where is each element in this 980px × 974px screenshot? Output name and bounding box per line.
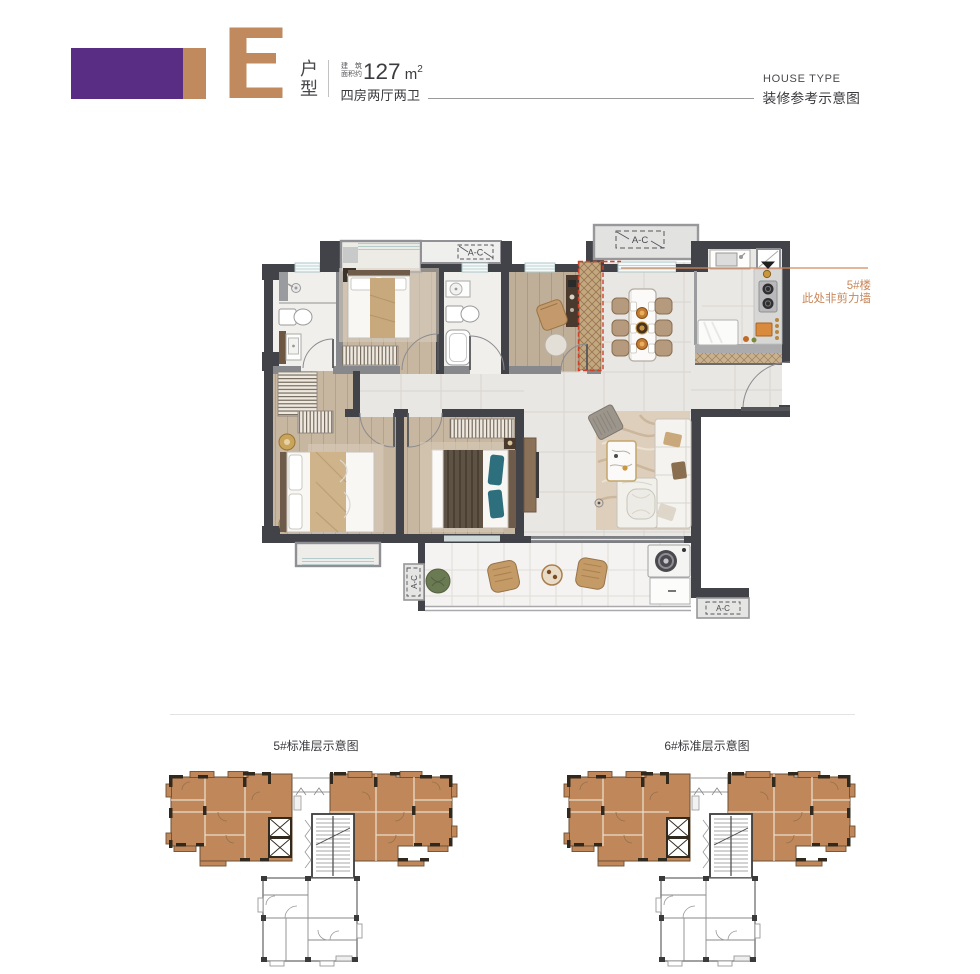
svg-text:A-C: A-C: [716, 604, 730, 613]
svg-text:A-C: A-C: [410, 575, 419, 589]
svg-text:A-C: A-C: [632, 235, 649, 246]
svg-text:A-C: A-C: [468, 248, 484, 258]
